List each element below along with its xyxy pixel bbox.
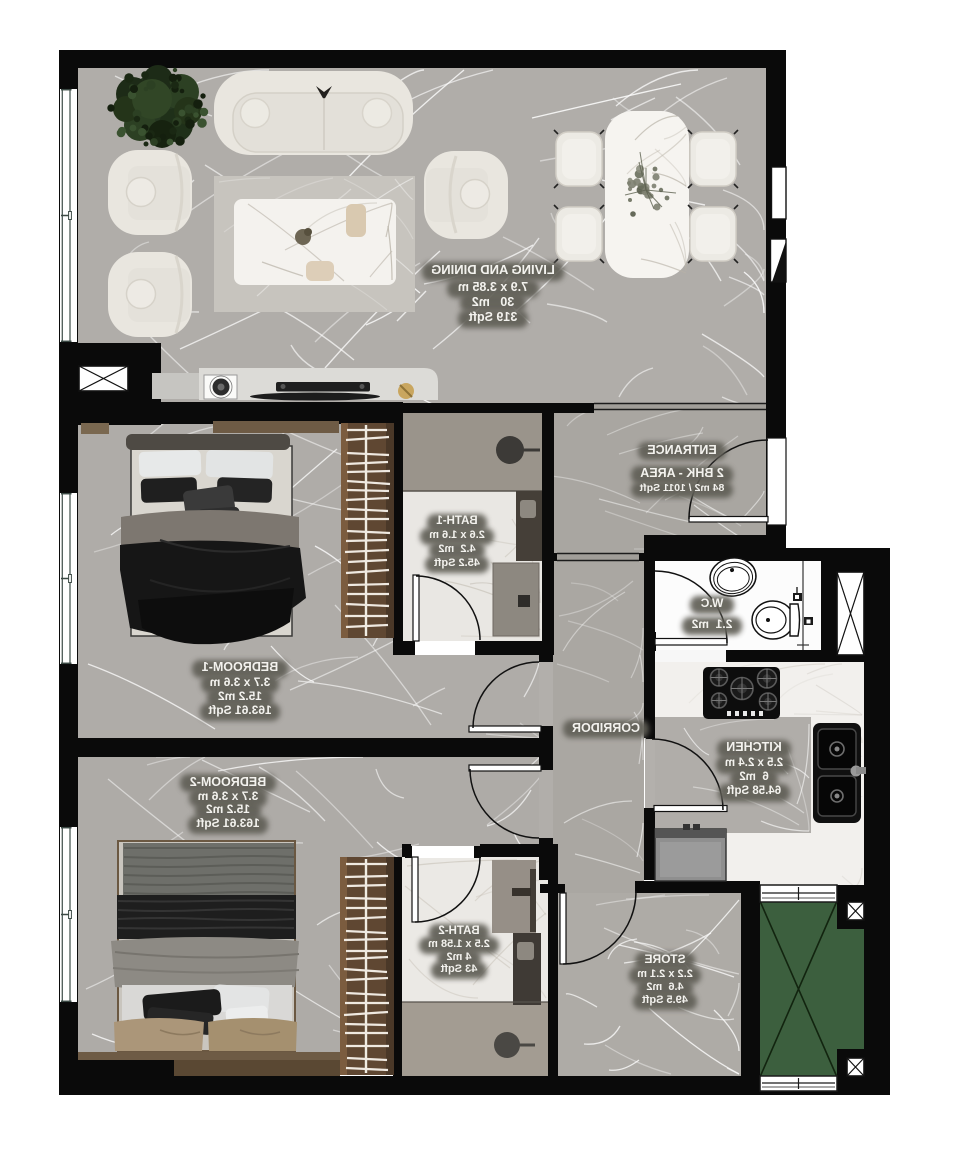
svg-text:163.61 Sqft: 163.61 Sqft — [196, 816, 259, 830]
svg-text:LIVING AND DINING: LIVING AND DINING — [431, 262, 555, 277]
svg-text:15.2 m2: 15.2 m2 — [206, 802, 250, 816]
svg-text:4 m2: 4 m2 — [446, 951, 471, 963]
svg-text:3.7 x 3.6 m: 3.7 x 3.6 m — [198, 789, 259, 803]
svg-text:43 Sqft: 43 Sqft — [440, 963, 477, 975]
svg-text:2.2 x 2.1 m: 2.2 x 2.1 m — [637, 968, 693, 980]
svg-text:BEDROOM-2: BEDROOM-2 — [190, 775, 266, 789]
svg-text:2.1 m2: 2.1 m2 — [691, 617, 732, 631]
svg-text:W.C: W.C — [700, 596, 723, 610]
svg-text:CORRIDOR: CORRIDOR — [572, 721, 640, 735]
svg-text:30 m2: 30 m2 — [472, 295, 514, 309]
svg-text:2.5 x 2.4 m: 2.5 x 2.4 m — [725, 757, 783, 769]
svg-text:6 m2: 6 m2 — [739, 771, 768, 783]
svg-text:2 BHK - AREA: 2 BHK - AREA — [640, 466, 724, 480]
svg-text:64.58 Sqft: 64.58 Sqft — [727, 785, 781, 797]
svg-text:319 Sqft: 319 Sqft — [468, 310, 517, 324]
svg-text:45.2 Sqft: 45.2 Sqft — [434, 557, 480, 569]
svg-text:49.5 Sqft: 49.5 Sqft — [642, 994, 688, 1006]
svg-text:4.6 m2: 4.6 m2 — [646, 981, 683, 993]
svg-text:15.2 m2: 15.2 m2 — [218, 689, 262, 703]
svg-text:ENTRANCE: ENTRANCE — [647, 443, 716, 457]
svg-text:7.9 x 3.85 m: 7.9 x 3.85 m — [458, 280, 528, 294]
svg-text:KITCHEN: KITCHEN — [726, 740, 782, 754]
svg-text:2.6 x 1.6 m: 2.6 x 1.6 m — [429, 529, 485, 541]
svg-text:3.7 x 3.6 m: 3.7 x 3.6 m — [210, 675, 271, 689]
svg-text:2.5 x 1.58 m: 2.5 x 1.58 m — [428, 938, 490, 950]
svg-text:4.2 m2: 4.2 m2 — [438, 543, 475, 555]
svg-text:BATH-1: BATH-1 — [436, 515, 478, 527]
svg-text:BEDROOM-1: BEDROOM-1 — [202, 660, 278, 674]
svg-text:84 m2 / 1011 Sqft: 84 m2 / 1011 Sqft — [639, 482, 724, 494]
svg-text:BATH-2: BATH-2 — [438, 925, 479, 937]
svg-text:STORE: STORE — [644, 952, 685, 966]
svg-text:163.61 Sqft: 163.61 Sqft — [208, 703, 271, 717]
